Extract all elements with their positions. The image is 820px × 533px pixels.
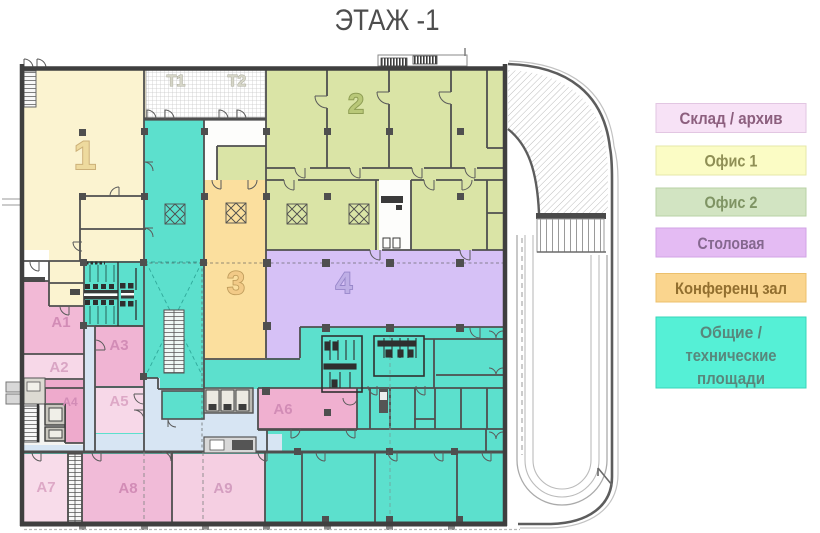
svg-text:A7: A7: [36, 479, 55, 496]
svg-text:Конференц зал: Конференц зал: [675, 279, 787, 298]
svg-text:2: 2: [348, 88, 364, 119]
svg-text:A5: A5: [109, 393, 128, 410]
svg-text:A6: A6: [273, 401, 292, 418]
svg-text:T1: T1: [167, 73, 186, 90]
svg-text:1: 1: [74, 134, 96, 178]
svg-text:A9: A9: [213, 480, 232, 497]
svg-text:A8: A8: [118, 480, 137, 497]
svg-text:A4: A4: [62, 395, 78, 409]
svg-text:4: 4: [336, 267, 353, 300]
svg-text:технические: технические: [686, 346, 777, 365]
svg-text:3: 3: [227, 265, 245, 301]
svg-text:площади: площади: [697, 369, 765, 388]
svg-text:A1: A1: [51, 314, 70, 331]
svg-text:T2: T2: [228, 73, 247, 90]
svg-text:A2: A2: [49, 359, 68, 376]
svg-text:ЭТАЖ -1: ЭТАЖ -1: [335, 4, 440, 37]
svg-text:Офис 2: Офис 2: [705, 193, 758, 212]
svg-text:Склад / архив: Склад / архив: [680, 109, 783, 128]
svg-text:Столовая: Столовая: [698, 234, 765, 253]
svg-text:A3: A3: [109, 337, 128, 354]
svg-text:Общие /: Общие /: [700, 323, 762, 342]
svg-text:Офис 1: Офис 1: [705, 152, 758, 171]
